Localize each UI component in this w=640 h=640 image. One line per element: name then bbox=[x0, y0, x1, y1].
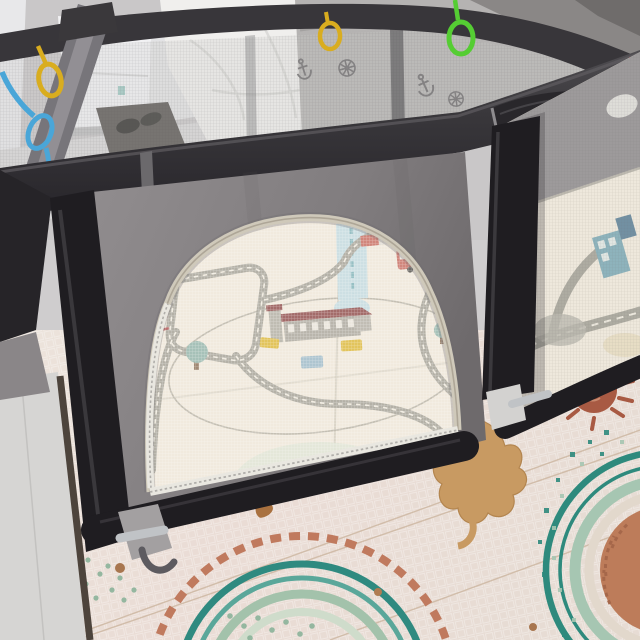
brown-spot bbox=[529, 623, 537, 631]
brown-spot bbox=[115, 563, 125, 573]
back-corner-post-through-mesh bbox=[390, 25, 405, 134]
corner-wedge bbox=[0, 170, 52, 342]
ring-strap bbox=[455, 0, 458, 20]
photo-canvas bbox=[0, 0, 640, 640]
scene-svg bbox=[0, 0, 640, 640]
mesh-seam bbox=[245, 35, 257, 147]
brown-spot bbox=[374, 588, 382, 596]
